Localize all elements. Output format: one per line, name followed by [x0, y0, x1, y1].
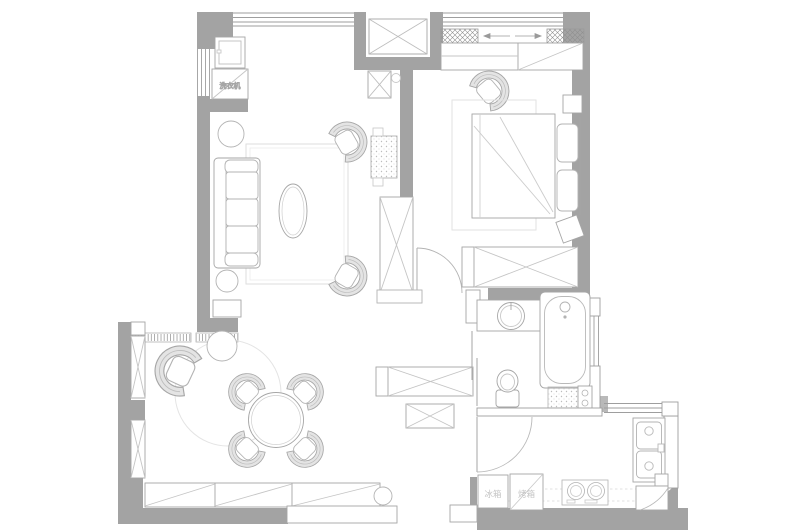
- lounge-side-table: [207, 331, 237, 361]
- pillow: [557, 170, 578, 211]
- curtain-arrows: [484, 34, 541, 39]
- under-tub-cabinet: [548, 386, 592, 410]
- bathtub: [540, 292, 590, 388]
- corner-cabinet: [636, 486, 668, 510]
- curtain-box-right: [547, 29, 584, 43]
- tv-cabinet: [371, 128, 397, 186]
- floor-plant: [374, 487, 392, 505]
- cooktop: [562, 480, 608, 505]
- window-living-left: [198, 49, 210, 96]
- wardrobe-bedroom: [441, 43, 583, 70]
- wall-laundry-south: [197, 99, 248, 112]
- side-table-bottom: [216, 270, 238, 292]
- fridge-label: 冰箱: [484, 489, 502, 500]
- wall-bottom-kitchen: [477, 508, 688, 530]
- dining-bench: [145, 483, 380, 507]
- nightstand: [563, 95, 582, 113]
- hall-wardrobe: [380, 197, 413, 293]
- shoe-cabinet: [376, 367, 473, 396]
- console-shelf: [377, 290, 422, 303]
- armchair-bedroom: [467, 63, 517, 114]
- washer-label: 洗衣机: [220, 81, 241, 90]
- laundry-closet: 洗衣机: [212, 37, 248, 99]
- curtain-boxes: [441, 29, 584, 43]
- oven-label: 烤箱: [518, 489, 536, 500]
- armchair-living-bottom: [327, 253, 374, 303]
- curtain-box-left: [441, 29, 478, 43]
- dining-table: [249, 393, 304, 448]
- lounge-chair: [147, 338, 204, 400]
- windows: [198, 13, 663, 413]
- kitchen-ne-corner-wall: [662, 402, 678, 416]
- side-table-top: [218, 121, 244, 147]
- sofa: [214, 158, 260, 268]
- low-cabinet-inset: [287, 506, 397, 523]
- floor-plan-drawing: 洗衣机: [0, 0, 800, 532]
- wall-left-living: [197, 96, 210, 332]
- wall-dining-west-block: [128, 400, 145, 420]
- pillow: [557, 124, 578, 162]
- wall-shaft-bottom: [354, 57, 443, 70]
- armchair-living-top: [327, 115, 374, 165]
- bedroom-door: [417, 248, 462, 293]
- bed-end-bench: [462, 247, 578, 287]
- oven: 烤箱: [510, 474, 543, 510]
- entry-cabinet-low: [406, 404, 454, 428]
- window-seat-cabinet: [213, 300, 241, 317]
- flue-shaft: [368, 71, 401, 98]
- wall-bedroom-partition: [400, 70, 413, 197]
- window-bedroom-top: [443, 13, 563, 26]
- fridge: 冰箱: [478, 475, 508, 508]
- window-kitchen-north: [604, 404, 662, 413]
- wall-entry-post: [470, 477, 477, 508]
- floor-plan-canvas: 洗衣机: [0, 0, 800, 532]
- bathroom: [472, 292, 600, 410]
- toilet: [496, 370, 519, 407]
- bed: [472, 114, 580, 218]
- pipe-circle: [392, 74, 401, 83]
- hallway: [376, 290, 480, 522]
- living-room: [214, 115, 397, 304]
- kitchen-north-wall: [477, 408, 602, 416]
- vanity-counter: [477, 300, 545, 331]
- kitchen-door: [477, 417, 532, 472]
- wall-bottom-dining: [118, 508, 288, 524]
- kitchen-small-unit: [655, 474, 668, 486]
- dining-room: [131, 322, 397, 523]
- wall-living-south-stub: [210, 318, 238, 332]
- window-living-top: [233, 13, 354, 26]
- elevator-shaft: [369, 19, 427, 54]
- coffee-table: [279, 184, 307, 238]
- entry-door-post: [450, 505, 477, 522]
- kitchen: 冰箱 烤箱: [477, 402, 678, 510]
- window-bathroom-east: [590, 316, 599, 366]
- kitchen-sink: [633, 418, 665, 482]
